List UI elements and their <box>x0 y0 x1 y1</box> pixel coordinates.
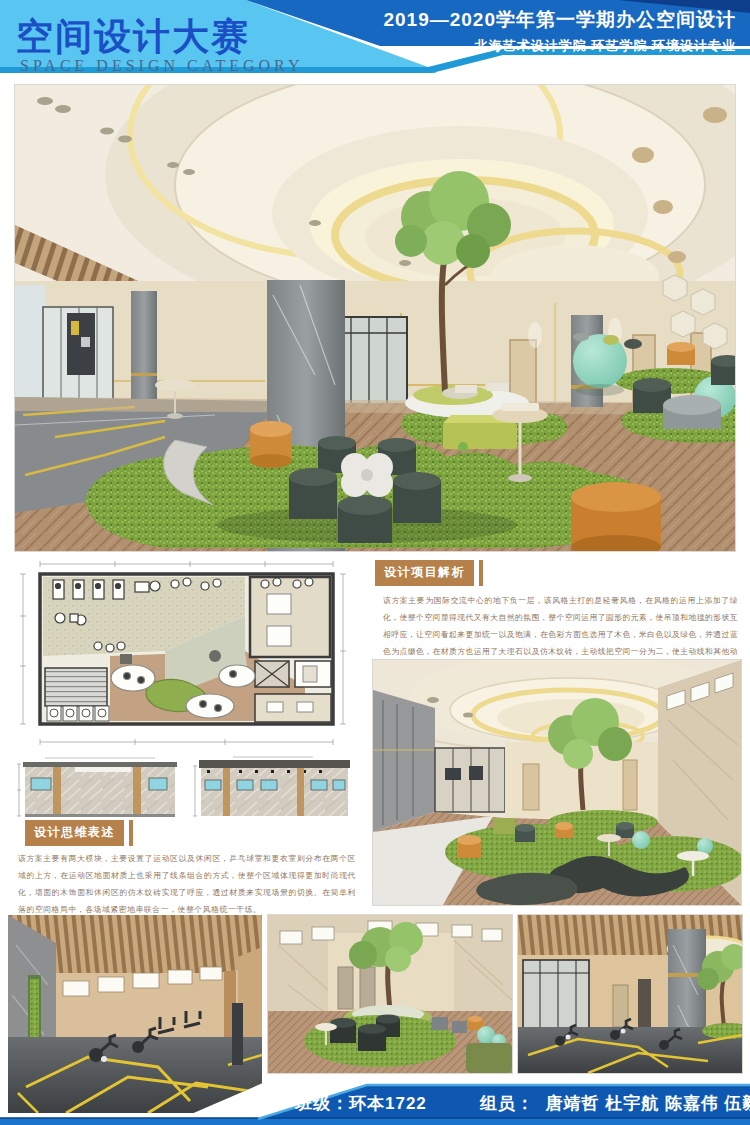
thinking-section-header: 设计思维表述 <box>25 820 124 846</box>
footer-class: 班级：环本1722 <box>295 1092 427 1115</box>
analysis-title: 设计项目解析 <box>384 565 465 579</box>
analysis-section-header: 设计项目解析 <box>375 560 474 586</box>
footer-members: 组员： 唐靖哲 杜宇航 陈嘉伟 伍毅 <box>480 1092 750 1115</box>
elevation-drawings-image <box>15 756 350 826</box>
header-right-block: 2019—2020学年第一学期办公空间设计 北海艺术设计学院 环艺学院 环境设计… <box>383 7 736 55</box>
thumb-lounge-image <box>268 915 512 1073</box>
school-line: 北海艺术设计学院 环艺学院 环境设计专业 <box>383 37 736 55</box>
term-title: 2019—2020学年第一学期办公空间设计 <box>383 7 736 33</box>
design-competition-poster: 空间设计大赛 SPACE DESIGN CATEGORY 2019—2020学年… <box>0 0 750 1125</box>
analysis-render-image <box>373 660 741 905</box>
thinking-accent-bar <box>129 820 133 846</box>
header: 空间设计大赛 SPACE DESIGN CATEGORY 2019—2020学年… <box>0 0 750 85</box>
thinking-body: 该方案主要有两大模块，主要设置了运动区以及休闲区，乒乓球室和更衣室则分布在两个区… <box>18 850 356 918</box>
elevation-right <box>193 757 350 816</box>
poster-title-cn: 空间设计大赛 <box>16 12 250 62</box>
analysis-accent-bar <box>479 560 483 586</box>
gym-equipment <box>67 313 95 375</box>
main-render-image <box>15 85 735 551</box>
floor-plan-image <box>15 556 350 751</box>
thumb-gym-right-image <box>518 915 742 1073</box>
elevation-left <box>17 758 177 817</box>
poster-title-en: SPACE DESIGN CATEGORY <box>20 57 303 75</box>
thinking-title: 设计思维表述 <box>34 825 115 839</box>
